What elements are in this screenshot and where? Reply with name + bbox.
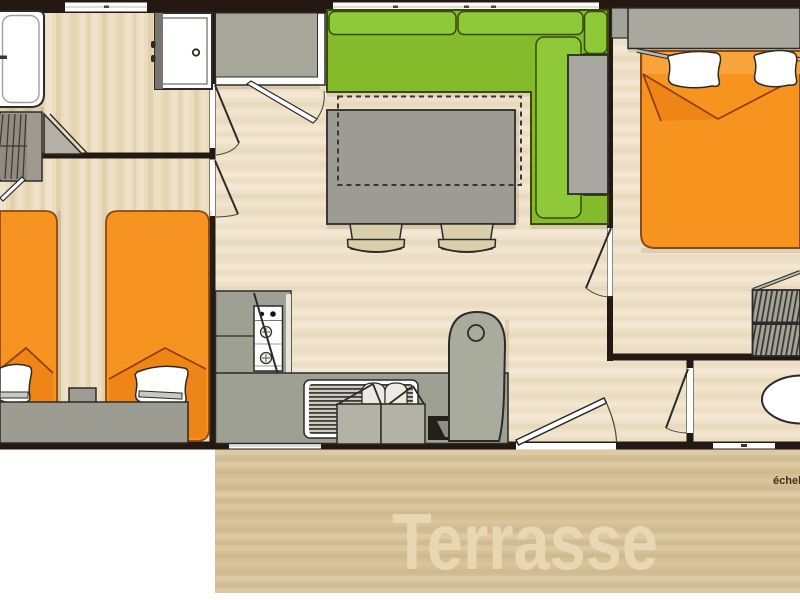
svg-text:échelle : 1/100: échelle : 1/100	[773, 475, 800, 487]
svg-text:Terrasse: Terrasse	[392, 497, 658, 586]
